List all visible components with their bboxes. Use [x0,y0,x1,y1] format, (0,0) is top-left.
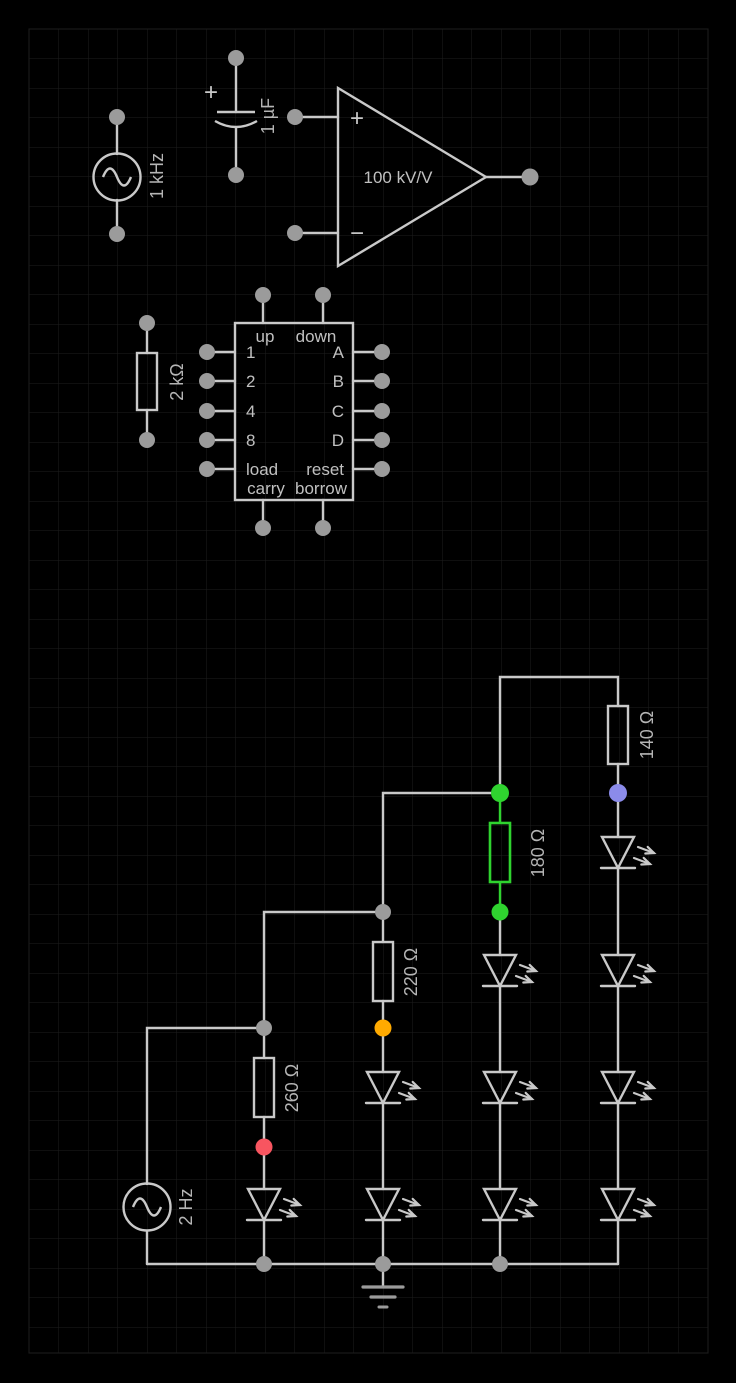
terminal-dot[interactable] [315,520,331,536]
terminal-dot[interactable] [109,226,125,242]
terminal-dot[interactable] [199,344,215,360]
opamp-minus-mark: − [350,220,364,247]
terminal-dot[interactable] [199,461,215,477]
ic-pin-carry: carry [247,479,285,498]
terminal-dot[interactable] [522,169,539,186]
ic-pin-4: 4 [246,402,255,421]
terminal-dot[interactable] [287,109,303,125]
ic-pin-borrow: borrow [295,479,348,498]
terminal-dot[interactable] [199,373,215,389]
terminal-dot[interactable] [228,167,244,183]
resistor-180-label: 180 Ω [528,829,548,878]
ic-pin-a: A [333,343,345,362]
terminal-dot[interactable] [255,287,271,303]
resistor-260-label: 260 Ω [282,1064,302,1113]
terminal-dot[interactable] [199,432,215,448]
ic-pin-c: C [332,402,344,421]
capacitor-plus-mark: + [204,79,218,106]
junction-dot [256,1020,272,1036]
grid [29,29,708,1353]
terminal-dot[interactable] [109,109,125,125]
orange-node-dot [375,1020,392,1037]
green-node-dot [492,904,509,921]
terminal-dot[interactable] [315,287,331,303]
ic-pin-2: 2 [246,372,255,391]
terminal-dot[interactable] [374,461,390,477]
ic-pin-reset: reset [306,460,344,479]
ic-pin-down: down [296,327,337,346]
resistor-2k-label: 2 kΩ [167,363,187,400]
ac-source-2hz-label: 2 Hz [176,1188,196,1225]
ic-pin-d: D [332,431,344,450]
blue-node-dot [609,784,627,802]
ic-pin-1: 1 [246,343,255,362]
junction-dot [375,1256,391,1272]
junction-dot [375,904,391,920]
junction-dot [492,1256,508,1272]
ic-pin-up: up [256,327,275,346]
terminal-dot[interactable] [287,225,303,241]
red-node-dot [256,1139,273,1156]
ic-pin-load: load [246,460,278,479]
ic-pin-b: B [333,372,344,391]
opamp-plus-mark: + [350,105,364,132]
circuit-canvas[interactable]: 1 kHz + 1 µF + − 100 kV/V [0,0,736,1383]
ic-pin-8: 8 [246,431,255,450]
terminal-dot[interactable] [199,403,215,419]
capacitor-1uf-label: 1 µF [258,98,278,134]
junction-dot [256,1256,272,1272]
terminal-dot[interactable] [228,50,244,66]
terminal-dot[interactable] [139,315,155,331]
ac-source-1khz-label: 1 kHz [147,153,167,199]
green-node-dot [491,784,509,802]
terminal-dot[interactable] [255,520,271,536]
terminal-dot[interactable] [374,403,390,419]
resistor-220-label: 220 Ω [401,948,421,997]
terminal-dot[interactable] [374,373,390,389]
opamp-gain-label: 100 kV/V [364,168,434,187]
terminal-dot[interactable] [374,344,390,360]
terminal-dot[interactable] [374,432,390,448]
resistor-140-label: 140 Ω [637,711,657,760]
terminal-dot[interactable] [139,432,155,448]
